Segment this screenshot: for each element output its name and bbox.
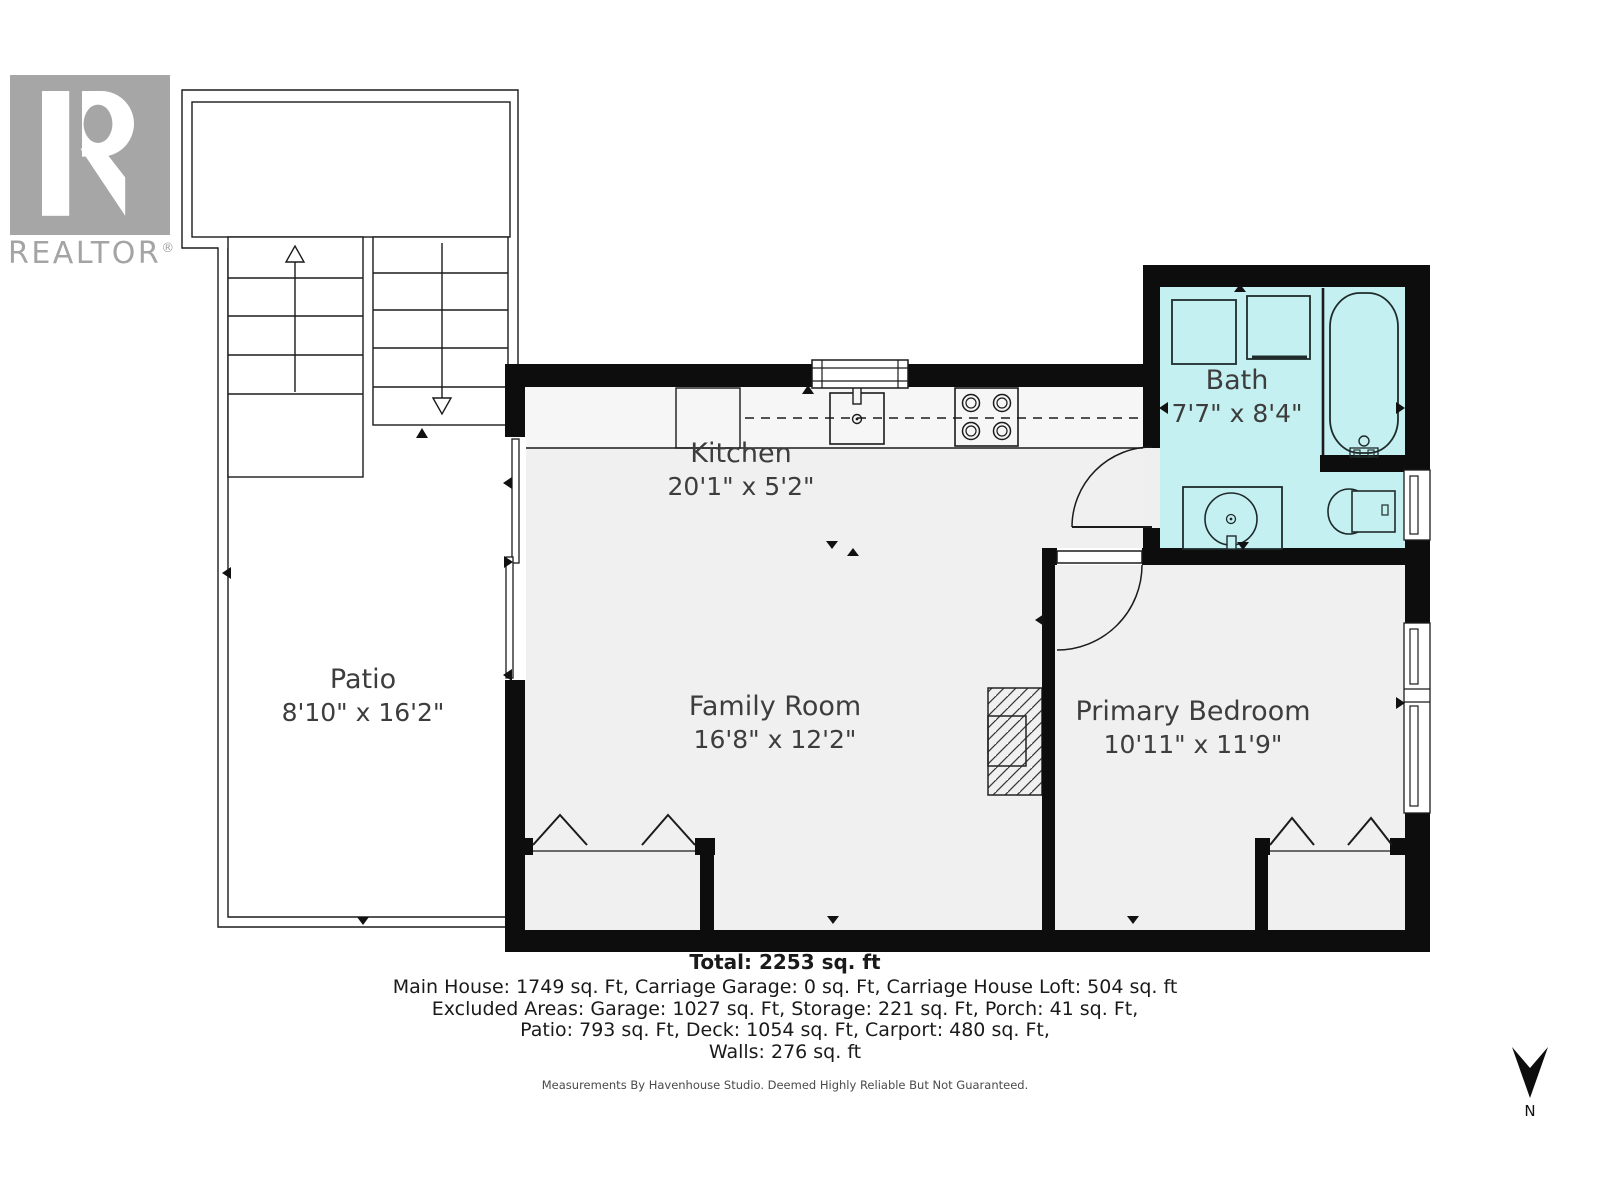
bath-window [1404,470,1430,540]
primary-bedroom-name: Primary Bedroom [1075,695,1310,729]
summary-line-2: Excluded Areas: Garage: 1027 sq. Ft, Sto… [393,999,1178,1021]
kitchen-window [812,360,908,388]
summary-line-1: Main House: 1749 sq. Ft, Carriage Garage… [393,977,1178,999]
patio-dims: 8'10" x 16'2" [282,697,445,729]
bath-shower [1247,296,1310,359]
bath-vanity-sink [1183,487,1282,549]
primary-bedroom-dims: 10'11" x 11'9" [1075,729,1310,761]
realtor-logo-icon [10,75,170,235]
room-label-bath: Bath 7'7" x 8'4" [1171,364,1302,430]
north-arrow-icon [1512,1047,1548,1098]
summary-total: Total: 2253 sq. ft [393,950,1178,974]
bedroom-windows [1404,623,1430,813]
family-room-name: Family Room [689,690,861,724]
family-room-dims: 16'8" x 12'2" [689,724,861,756]
bath-dims: 7'7" x 8'4" [1171,398,1302,430]
north-label: N [1524,1102,1535,1120]
kitchen-name: Kitchen [668,437,815,471]
disclaimer-text: Measurements By Havenhouse Studio. Deeme… [393,1078,1178,1092]
registered-mark: ® [161,241,174,256]
stair-landing [192,102,510,237]
bath-name: Bath [1171,364,1302,398]
kitchen-dims: 20'1" x 5'2" [668,471,815,503]
bathtub [1330,293,1398,457]
patio-name: Patio [282,663,445,697]
room-label-patio: Patio 8'10" x 16'2" [282,663,445,729]
summary-line-3: Patio: 793 sq. Ft, Deck: 1054 sq. Ft, Ca… [393,1020,1178,1042]
room-label-kitchen: Kitchen 20'1" x 5'2" [668,437,815,503]
kitchen-counter [525,386,1143,448]
room-label-primary-bedroom: Primary Bedroom 10'11" x 11'9" [1075,695,1310,761]
stairs [192,102,510,477]
bath-cabinet [1172,300,1236,364]
area-summary: Total: 2253 sq. ft Main House: 1749 sq. … [393,950,1178,1092]
fireplace [988,688,1042,795]
toilet [1328,489,1395,534]
room-label-family-room: Family Room 16'8" x 12'2" [689,690,861,756]
summary-line-4: Walls: 276 sq. ft [393,1042,1178,1064]
realtor-logo [10,75,170,235]
realtor-wordmark: REALTOR® [8,236,208,271]
